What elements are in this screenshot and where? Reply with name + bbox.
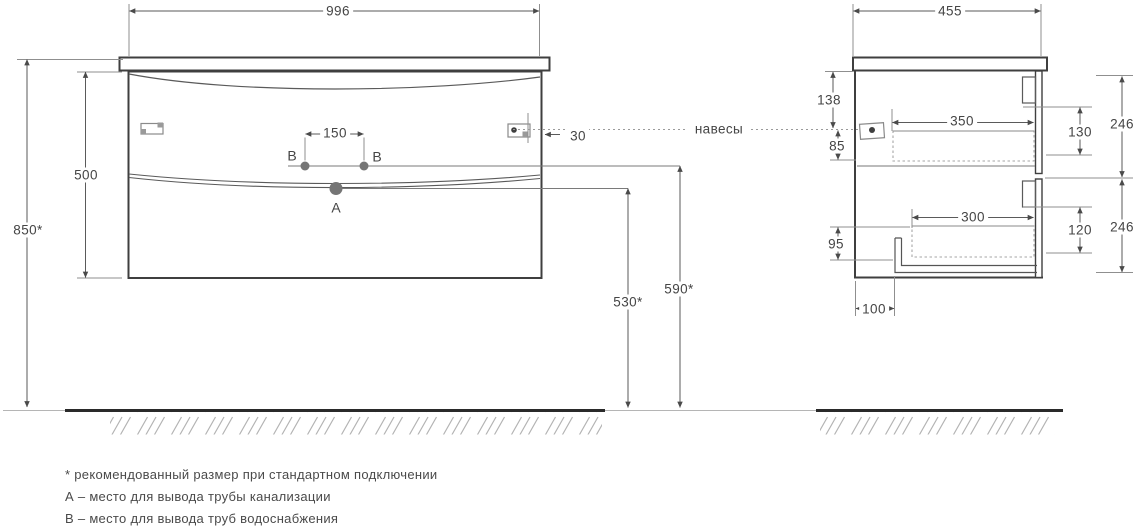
bottom-panel-pipe-recess (895, 238, 1037, 273)
note-point-a: А – место для вывода трубы канализации (65, 489, 331, 505)
side-hanger-bracket (860, 123, 885, 140)
lower-drawer-box-dashed (912, 226, 1034, 257)
dim-label-upper-drawer-height: 130 (1065, 125, 1095, 140)
dim-label-holes-spacing: 150 (320, 126, 350, 141)
vanity-dimension-drawing: 996 500 850* 150 30 530* 590* B B A наве… (0, 0, 1135, 528)
side-view (825, 4, 1133, 316)
hanger-bracket-left (141, 123, 164, 135)
point-label-b-left: B (286, 149, 297, 164)
front-cabinet-body (129, 72, 542, 279)
upper-front-bracket (1023, 77, 1036, 103)
drain-point-a-dot (330, 182, 343, 195)
side-cabinet-body (854, 71, 1043, 279)
front-view (17, 4, 867, 408)
front-extension-lines (17, 4, 540, 278)
hangers-label: навесы (692, 122, 746, 137)
dim-label-lower-clearance: 95 (825, 237, 847, 252)
ground (3, 411, 1063, 435)
dim-label-lower-drawer-height: 120 (1065, 223, 1095, 238)
lower-front-bracket (1023, 181, 1036, 207)
drawer-divider-curve-top (129, 174, 540, 184)
hanger-bracket-right (508, 124, 530, 137)
front-countertop (120, 58, 550, 71)
dim-label-mounting-height: 850* (10, 223, 45, 238)
dim-label-supply-height: 590* (661, 282, 696, 297)
upper-drawer-front (1036, 71, 1043, 174)
dim-label-lower-drawer-depth: 300 (958, 210, 988, 225)
dim-label-upper-front-height: 246 (1107, 117, 1135, 132)
note-point-b: В – место для вывода труб водоснабжения (65, 511, 338, 527)
side-extension-lines (825, 4, 1133, 316)
note-recommended: * рекомендованный размер при стандартном… (65, 467, 438, 483)
dim-label-front-width: 996 (323, 4, 353, 19)
side-countertop (853, 58, 1047, 71)
dim-label-upper-drawer-depth: 350 (947, 114, 977, 129)
point-label-a: A (330, 201, 341, 216)
dim-label-hangers-to-box: 85 (826, 139, 848, 154)
dim-label-top-to-hangers: 138 (814, 93, 844, 108)
upper-drawer-curve (129, 74, 540, 89)
dim-label-cabinet-height: 500 (71, 168, 101, 183)
dim-label-drain-height: 530* (610, 295, 645, 310)
floor-hatching-left (110, 413, 602, 435)
upper-drawer-box-dashed (893, 131, 1034, 161)
supply-point-b-left-dot (301, 162, 310, 171)
side-dimension-lines (833, 11, 1122, 309)
dim-label-side-depth: 455 (935, 4, 965, 19)
dim-label-lower-front-height: 246 (1107, 220, 1135, 235)
point-label-b-right: B (371, 150, 382, 165)
dim-label-bottom-recess: 100 (859, 302, 889, 317)
dim-label-hanger-offset: 30 (567, 129, 589, 144)
supply-point-b-right-dot (360, 162, 369, 171)
lower-drawer-front (1036, 179, 1043, 278)
floor-hatching-right (820, 413, 1055, 435)
drawing-canvas (0, 0, 1135, 528)
